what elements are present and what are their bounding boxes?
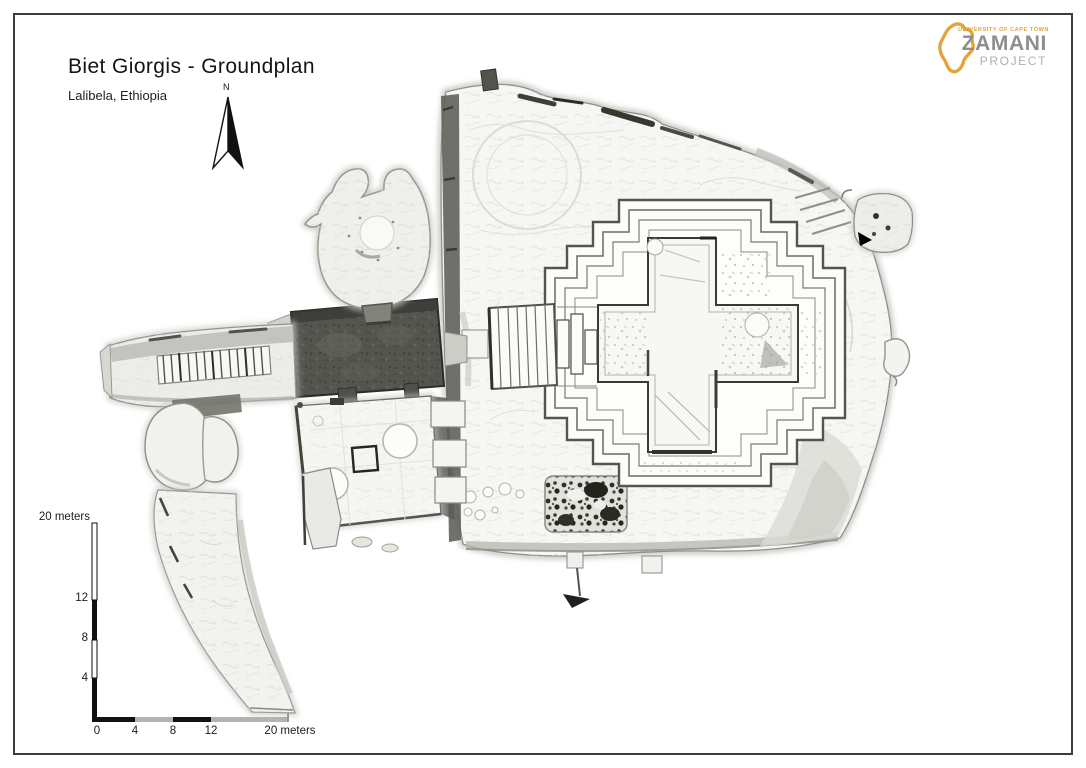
- vertical-scale-bar: [92, 523, 97, 722]
- bridge-tabs: [431, 401, 466, 503]
- vscale-top-label: 20 meters: [38, 511, 90, 523]
- page: Biet Giorgis - Groundplan Lalibela, Ethi…: [0, 0, 1086, 768]
- hscale-tick-12: 12: [200, 725, 222, 737]
- hscale-tick-4: 4: [128, 725, 142, 737]
- vegetation-patch: [545, 476, 627, 532]
- vscale-tick-12: 12: [66, 592, 88, 604]
- groundplan-rendering: [0, 0, 1086, 768]
- hscale-tick-0: 0: [90, 725, 104, 737]
- hscale-tick-8: 8: [166, 725, 180, 737]
- bulb-chamber: [145, 394, 242, 490]
- vscale-tick-8: 8: [66, 632, 88, 644]
- tail-trench: [154, 490, 295, 713]
- west-trench-arm: [100, 324, 296, 407]
- vscale-tick-4: 4: [66, 672, 88, 684]
- hscale-end-label: 20 meters: [250, 725, 330, 737]
